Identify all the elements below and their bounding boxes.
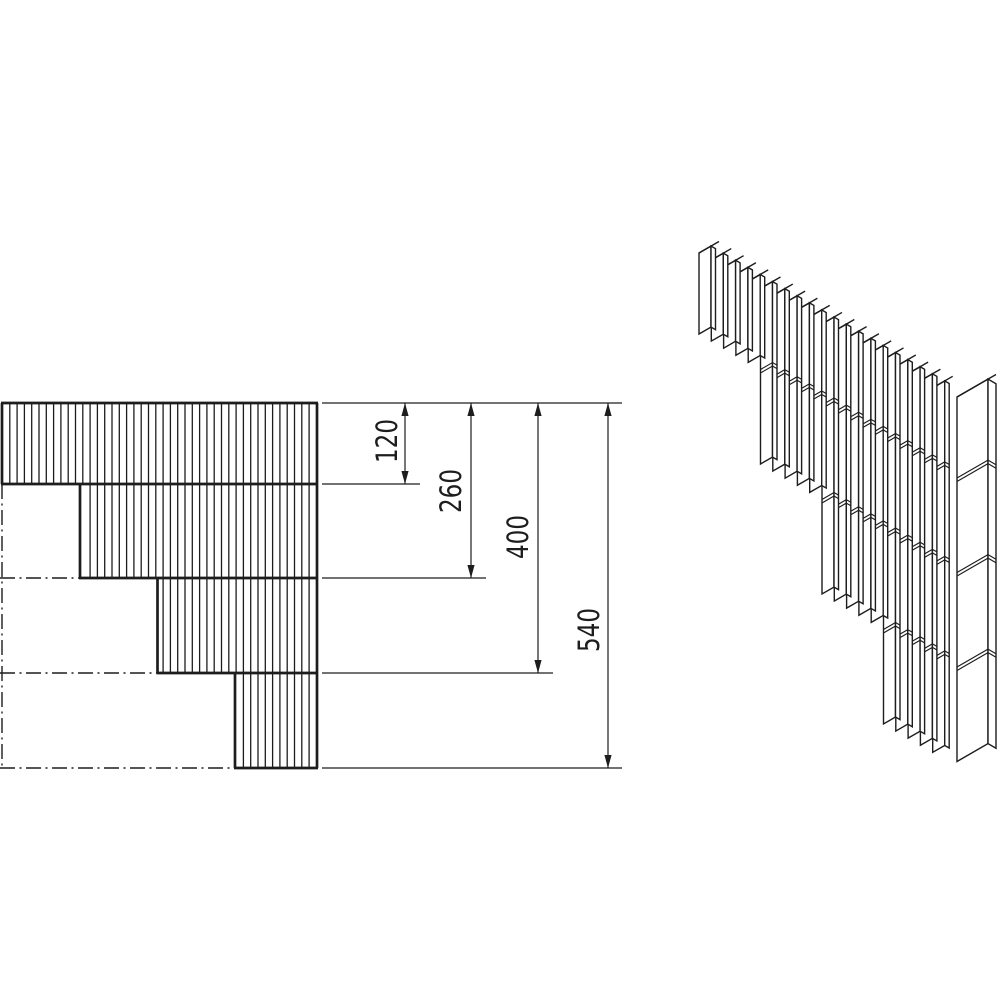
slat-1 xyxy=(699,241,719,334)
technical-drawing: 120260400540 xyxy=(0,0,1000,1000)
isometric-view xyxy=(699,241,996,761)
front-elevation-view xyxy=(0,403,318,768)
dimension-annotations: 120260400540 xyxy=(322,403,622,768)
drawing-canvas: 120260400540 xyxy=(0,0,1000,1000)
side-face xyxy=(748,267,753,351)
arrowhead-up-icon xyxy=(534,403,541,416)
side-face xyxy=(859,331,864,604)
arrowhead-up-icon xyxy=(467,403,474,416)
broad-face xyxy=(699,246,711,334)
side-face xyxy=(760,274,765,358)
side-face xyxy=(908,360,913,727)
hatching xyxy=(10,403,309,768)
side-face xyxy=(846,324,851,597)
arrowhead-up-icon xyxy=(401,403,408,416)
dimension-540: 540 xyxy=(572,403,611,768)
side-face xyxy=(896,353,901,720)
side-face xyxy=(809,303,814,481)
side-face xyxy=(711,246,716,330)
dimension-label-120: 120 xyxy=(370,419,404,463)
side-face xyxy=(920,367,925,734)
side-face xyxy=(723,253,728,337)
dimension-260: 260 xyxy=(434,403,474,578)
side-face xyxy=(785,289,790,467)
arrowhead-up-icon xyxy=(604,403,611,416)
side-face xyxy=(736,260,741,344)
dimension-label-260: 260 xyxy=(434,469,468,513)
corner-post xyxy=(957,375,996,762)
dimension-label-540: 540 xyxy=(572,608,606,652)
arrowhead-down-icon xyxy=(467,565,474,578)
outline xyxy=(1,403,318,768)
dimension-label-400: 400 xyxy=(501,515,535,559)
side-face xyxy=(871,338,876,611)
extension-lines xyxy=(322,403,622,768)
arrowhead-down-icon xyxy=(401,471,408,484)
side-face xyxy=(773,282,778,460)
side-face xyxy=(932,374,937,741)
dimension-400: 400 xyxy=(501,403,541,673)
side-face xyxy=(883,345,888,618)
arrowhead-down-icon xyxy=(534,660,541,673)
side-face xyxy=(822,310,827,488)
dimension-120: 120 xyxy=(370,403,408,484)
side-face xyxy=(988,379,996,748)
side-face xyxy=(945,381,950,748)
arrowhead-down-icon xyxy=(604,755,611,768)
side-face xyxy=(797,296,802,474)
side-face xyxy=(834,317,839,590)
